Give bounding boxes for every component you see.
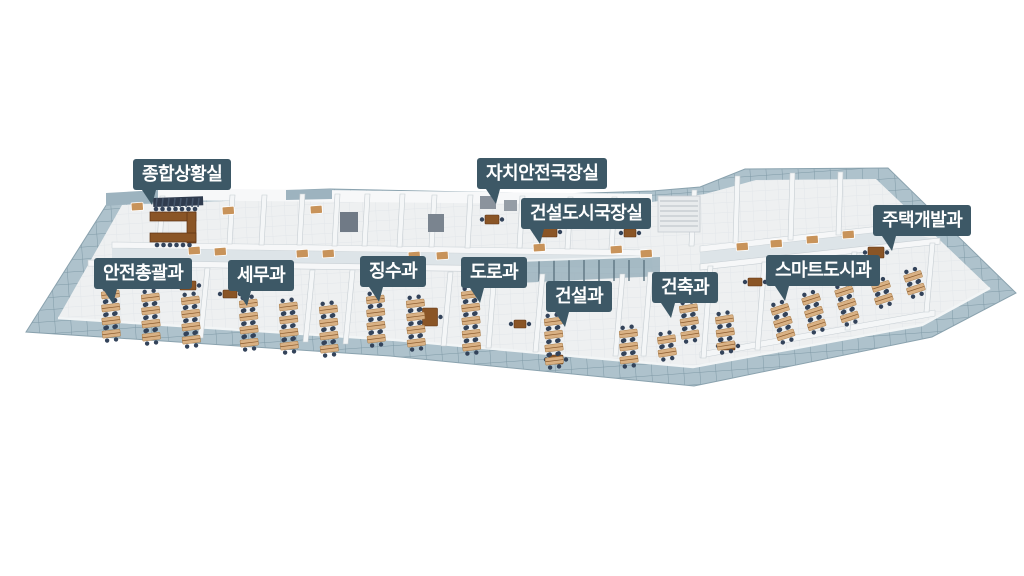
door	[214, 247, 227, 256]
room-label-jutaek-gaebalgwa: 주택개발과	[873, 205, 971, 236]
elevator-shaft	[340, 212, 358, 232]
door	[322, 249, 335, 258]
door	[222, 206, 235, 215]
door	[842, 230, 855, 239]
stairwell	[658, 196, 700, 232]
room-label-anjeon-chonggwalgwa: 안전총괄과	[94, 258, 192, 289]
door	[640, 249, 653, 258]
floor-guide-canvas: 종합상황실자치안전국장실건설도시국장실주택개발과안전총괄과세무과징수과도로과건설…	[0, 0, 1024, 576]
room-label-geonchukgwa: 건축과	[652, 272, 718, 303]
room-label-jingsugwa: 징수과	[360, 256, 426, 287]
room-label-geonseol-dosi-gukjangsil: 건설도시국장실	[521, 198, 651, 229]
door	[533, 243, 546, 252]
room-label-jachi-anjeon-gukjangsil: 자치안전국장실	[477, 158, 607, 189]
door	[806, 235, 819, 244]
room-label-geonseolgwa: 건설과	[546, 281, 612, 312]
door	[436, 251, 449, 260]
door	[610, 245, 623, 254]
door	[188, 246, 201, 255]
room-label-jonghap-sanghwangsil: 종합상황실	[133, 159, 231, 190]
room-label-smart-dosigwa: 스마트도시과	[766, 255, 880, 286]
door	[296, 249, 309, 258]
wall-seat-row	[153, 196, 203, 207]
door	[770, 239, 783, 248]
room-label-semugwa: 세무과	[228, 260, 294, 291]
door	[736, 242, 749, 251]
door	[310, 205, 323, 214]
room-label-dorogwa: 도로과	[461, 257, 527, 288]
elevator-shaft	[428, 214, 444, 232]
